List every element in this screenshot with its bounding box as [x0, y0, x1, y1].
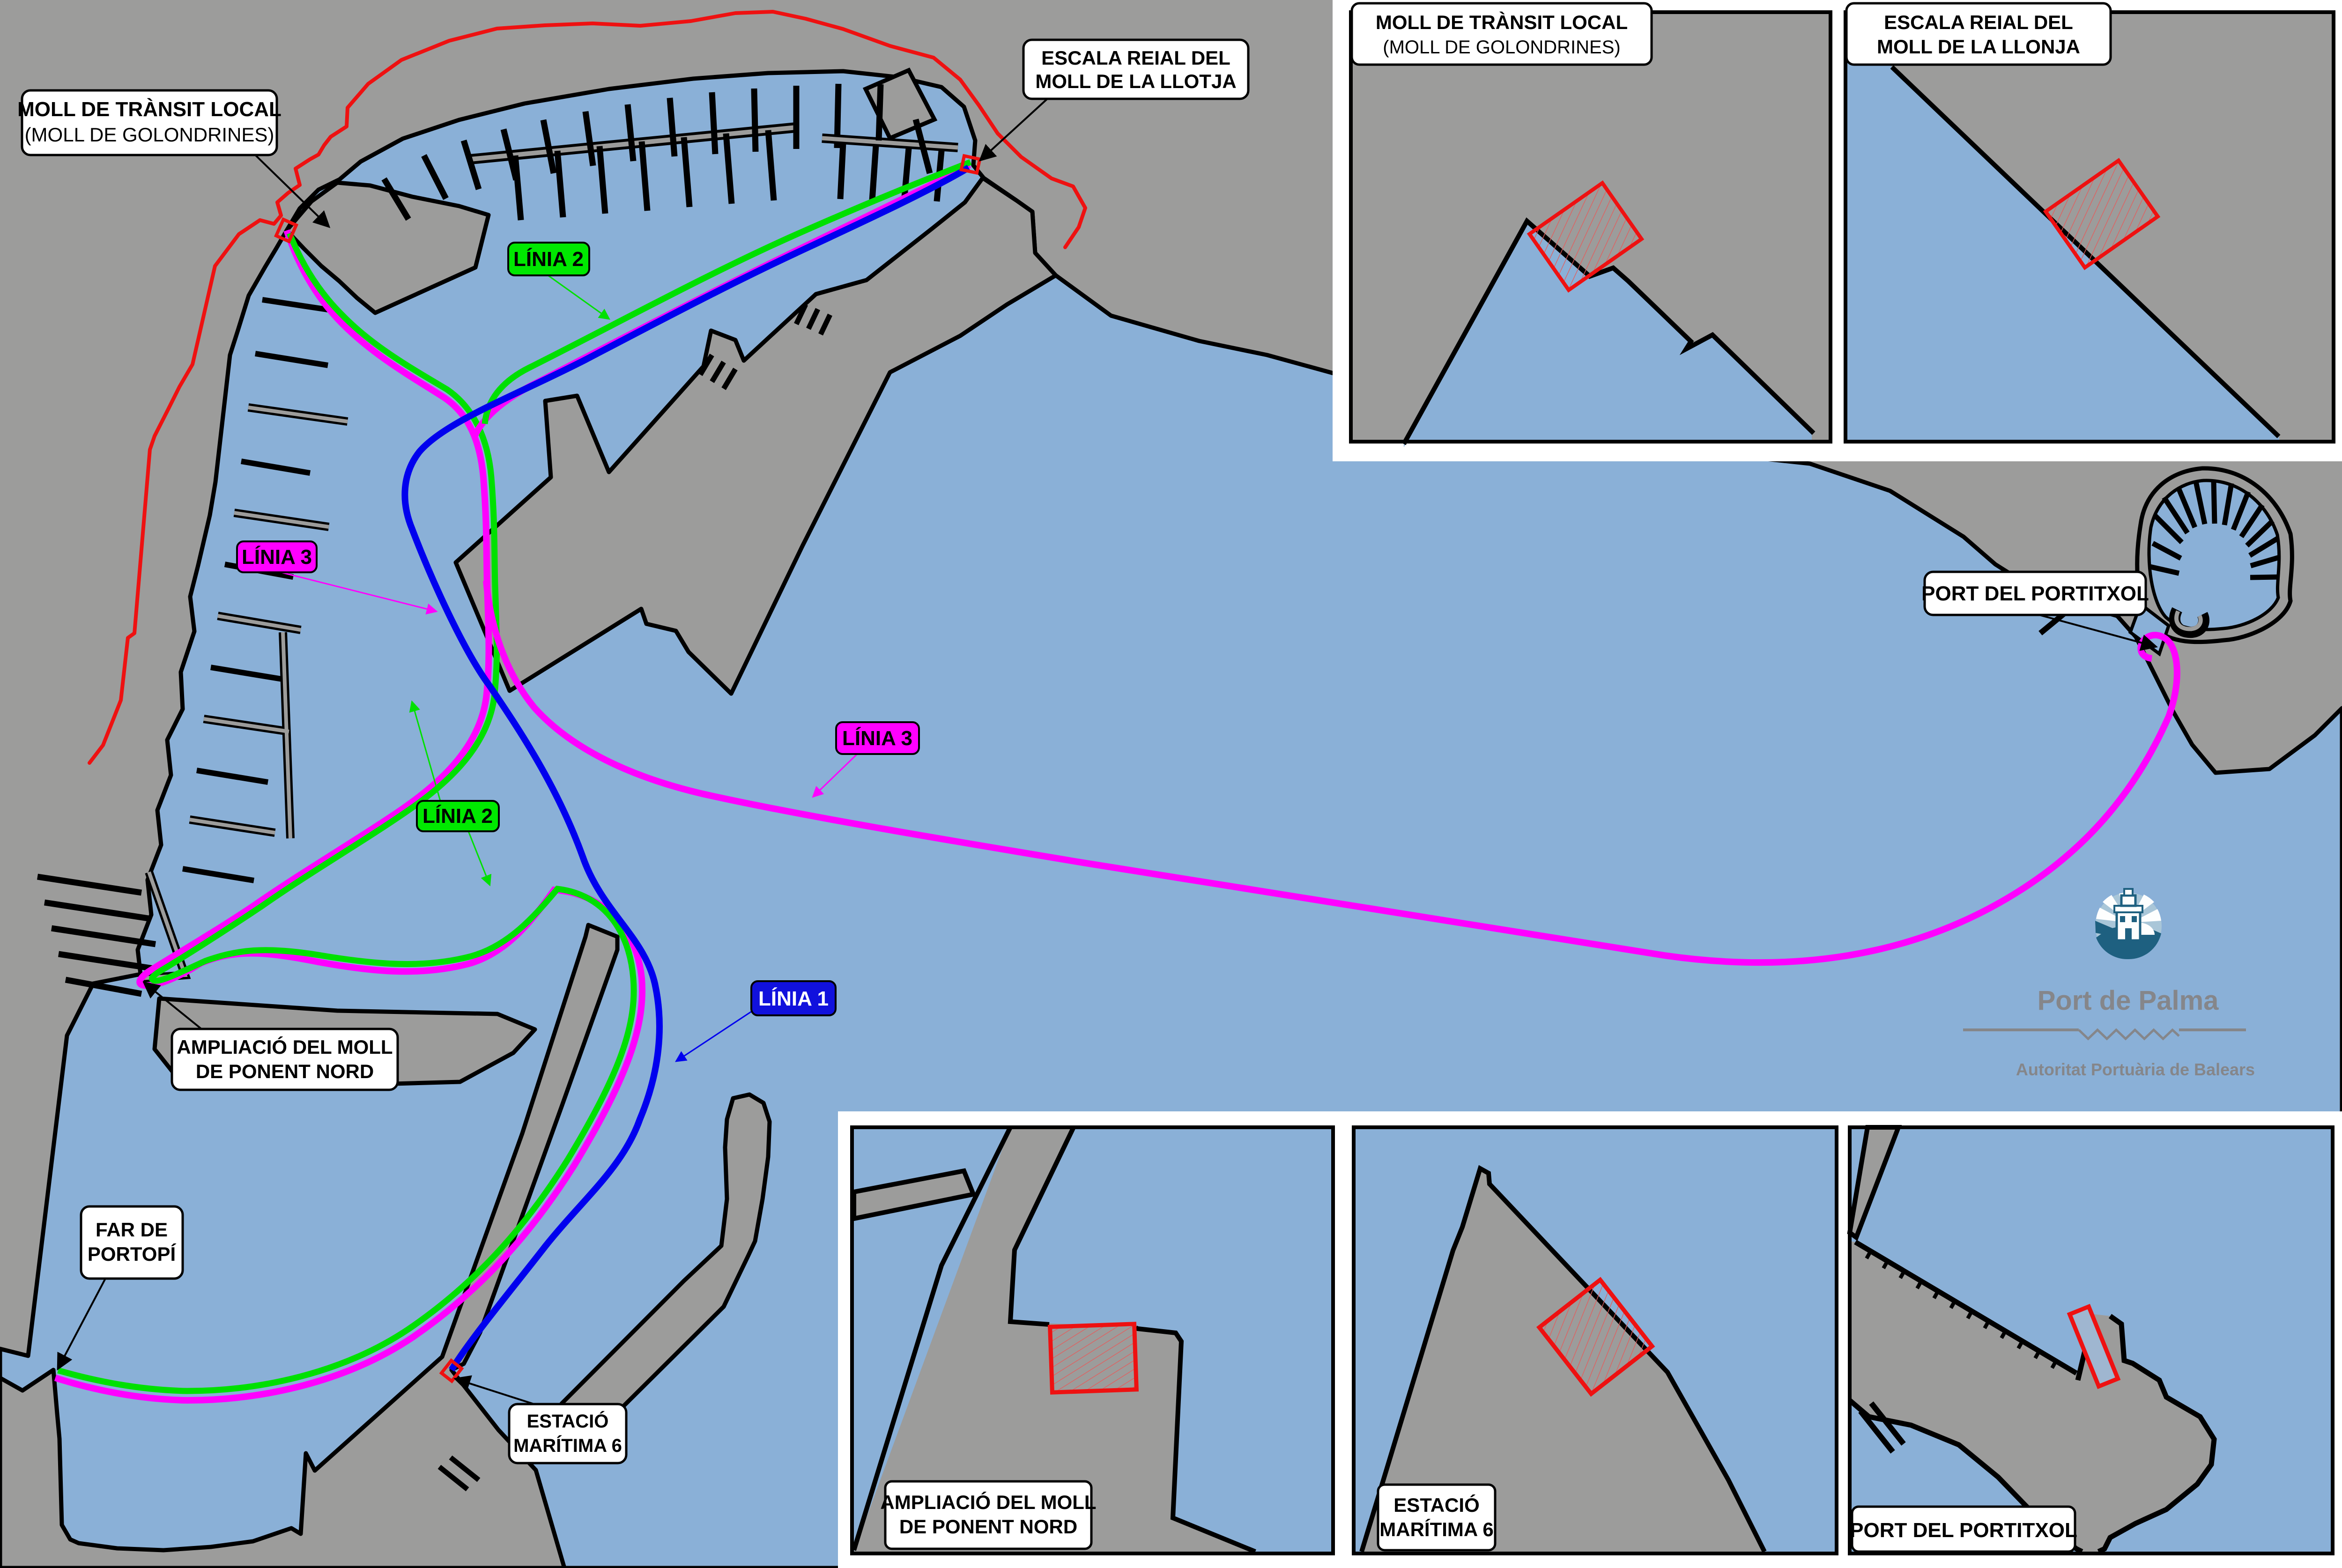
svg-text:LÍNIA 1: LÍNIA 1 — [758, 987, 829, 1010]
svg-text:ESCALA REIAL DEL: ESCALA REIAL DEL — [1884, 11, 2073, 33]
svg-text:LÍNIA 3: LÍNIA 3 — [842, 726, 912, 750]
svg-text:MOLL DE TRÀNSIT LOCAL: MOLL DE TRÀNSIT LOCAL — [1376, 11, 1628, 33]
svg-text:PORT DEL PORTITXOL: PORT DEL PORTITXOL — [1921, 582, 2149, 605]
svg-text:DE PONENT NORD: DE PONENT NORD — [899, 1516, 1077, 1538]
svg-text:MOLL DE LA LLONJA: MOLL DE LA LLONJA — [1877, 36, 2080, 58]
svg-text:FAR DE: FAR DE — [96, 1219, 168, 1241]
svg-text:PORTOPÍ: PORTOPÍ — [88, 1243, 177, 1265]
svg-text:AMPLIACIÓ DEL MOLL: AMPLIACIÓ DEL MOLL — [177, 1035, 393, 1058]
svg-text:LÍNIA 3: LÍNIA 3 — [242, 545, 312, 569]
svg-text:MARÍTIMA 6: MARÍTIMA 6 — [513, 1435, 622, 1456]
svg-text:MARÍTIMA 6: MARÍTIMA 6 — [1379, 1518, 1493, 1540]
svg-text:LÍNIA 2: LÍNIA 2 — [422, 804, 493, 828]
svg-text:DE PONENT NORD: DE PONENT NORD — [196, 1060, 374, 1082]
svg-text:ESTACIÓ: ESTACIÓ — [1393, 1494, 1480, 1516]
svg-text:MOLL DE TRÀNSIT LOCAL: MOLL DE TRÀNSIT LOCAL — [17, 97, 282, 121]
svg-text:(MOLL DE GOLONDRINES): (MOLL DE GOLONDRINES) — [1383, 37, 1620, 58]
svg-text:Port de Palma: Port de Palma — [2038, 985, 2219, 1016]
svg-text:PORT DEL PORTITXOL: PORT DEL PORTITXOL — [1850, 1519, 2077, 1542]
svg-text:LÍNIA 2: LÍNIA 2 — [513, 247, 584, 271]
svg-text:MOLL DE LA LLOTJA: MOLL DE LA LLOTJA — [1035, 70, 1236, 92]
svg-text:ESCALA REIAL DEL: ESCALA REIAL DEL — [1041, 47, 1230, 69]
svg-text:ESTACIÓ: ESTACIÓ — [527, 1410, 609, 1432]
svg-text:(MOLL DE GOLONDRINES): (MOLL DE GOLONDRINES) — [25, 124, 274, 146]
svg-text:AMPLIACIÓ DEL MOLL: AMPLIACIÓ DEL MOLL — [880, 1491, 1096, 1513]
svg-text:Autoritat Portuària de Balears: Autoritat Portuària de Balears — [2016, 1060, 2255, 1079]
